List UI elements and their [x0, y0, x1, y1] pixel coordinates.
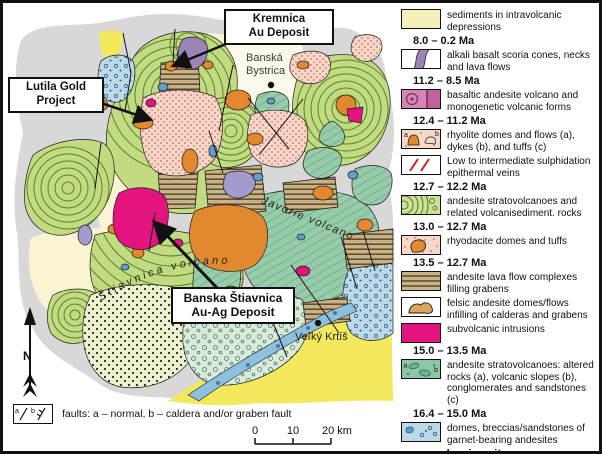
legend-row: alkali basalt scoria cones, necks and la… — [401, 49, 597, 73]
legend-row: basaltic andesite volcano and monogeneti… — [401, 89, 597, 113]
legend-label: andesite stratovolcanoes: altered rocks … — [447, 359, 597, 406]
legend-swatch-rhyolite: a b — [401, 129, 441, 149]
legend-group: 8.0 – 0.2 Ma alkali basalt scoria cones,… — [401, 35, 597, 73]
callout-line: Banska Štiavnica — [177, 291, 289, 305]
legend-age: 11.2 – 8.5 Ma — [413, 75, 597, 87]
svg-text:Veľký Krtíš: Veľký Krtíš — [295, 331, 348, 343]
scale-bar: 0 10 20 km — [252, 425, 352, 444]
legend-label: felsic andesite domes/flows infilling of… — [447, 297, 597, 321]
legend-group: 13.5 – 12.7 Ma andesite lava flow comple… — [401, 257, 597, 295]
svg-text:N: N — [23, 349, 32, 363]
legend-group: Low to intermediate sulphidation epither… — [401, 155, 597, 179]
callout-lutila-gold-project: Lutila Gold Project — [8, 77, 104, 113]
legend-label: sediments in intravolcanic depressions — [447, 9, 597, 33]
legend-age: 8.0 – 0.2 Ma — [413, 35, 597, 47]
svg-text:a: a — [15, 408, 19, 415]
svg-text:a: a — [404, 132, 408, 139]
svg-text:b: b — [31, 408, 35, 415]
legend-swatch-lava-flow-complexes — [401, 271, 441, 291]
legend-label: rhyodacite domes and tuffs — [447, 235, 597, 248]
legend-label: alkali basalt scoria cones, necks and la… — [447, 49, 597, 73]
legend-row: felsic andesite domes/flows infilling of… — [401, 297, 597, 321]
legend-group: 12.7 – 12.2 Ma andesite stratovolcanoes … — [401, 181, 597, 219]
geological-map-figure: Banská Bystrica Veľký Krtíš Štiavnica vo… — [0, 0, 602, 454]
legend-swatch-andesite-strato-young — [401, 195, 441, 215]
legend-label: rhyolite domes and flows (a), dykes (b),… — [447, 129, 597, 153]
legend-label: subvolcanic intrusions — [447, 323, 597, 336]
faults-note-text: faults: a – normal, b – caldera and/or g… — [62, 408, 291, 420]
svg-text:10: 10 — [287, 425, 299, 437]
callout-kremnica-au-deposit: Kremnica Au Deposit — [224, 9, 334, 45]
legend-swatch-basaltic-andesite — [401, 89, 441, 109]
legend-label: Low to intermediate sulphidation epither… — [447, 155, 597, 179]
legend-group: 13.0 – 12.7 Ma rhyodacite domes and tuff… — [401, 221, 597, 255]
callout-line: Lutila Gold — [14, 81, 98, 95]
legend-label: andesite lava flow complexes filling gra… — [447, 271, 597, 295]
legend-group: felsic andesite domes/flows infilling of… — [401, 297, 597, 321]
svg-text:0: 0 — [252, 425, 258, 437]
legend-group: 15.0 – 13.5 Ma a b andesite stratovolcan… — [401, 345, 597, 406]
legend-group: sediments in intravolcanic depressions — [401, 9, 597, 33]
legend-row: a b rhyolite domes and flows (a), dykes … — [401, 129, 597, 153]
legend-label: andesite stratovolcanoes and related vol… — [447, 195, 597, 219]
legend-row: rhyodacite domes and tuffs — [401, 235, 597, 255]
svg-text:20 km: 20 km — [322, 425, 352, 437]
svg-text:b: b — [434, 367, 438, 374]
svg-text:Banská: Banská — [246, 52, 284, 64]
town-marker — [268, 82, 274, 88]
legend-row: subvolcanic intrusions — [401, 323, 597, 343]
legend-swatch-andesite-strato-old: a b — [401, 359, 441, 379]
legend-group: 16.4 – 15.0 Ma domes, breccias/sandstone… — [401, 408, 597, 446]
legend-row: a b andesite stratovolcanoes: altered ro… — [401, 359, 597, 406]
legend-age: 12.7 – 12.2 Ma — [413, 181, 597, 193]
legend-group: pre-volcanic units a b a – Early Miocene… — [401, 448, 597, 451]
callout-banska-stiavnica-deposit: Banska Štiavnica Au-Ag Deposit — [171, 287, 295, 324]
legend-swatch-subvolcanic — [401, 323, 441, 343]
map-canvas: Banská Bystrica Veľký Krtíš Štiavnica vo… — [3, 3, 395, 451]
callout-line: Au-Ag Deposit — [177, 305, 289, 319]
legend-group: 11.2 – 8.5 Ma basaltic andesite volcano … — [401, 75, 597, 113]
legend-swatch-alkali-basalt — [401, 49, 441, 69]
svg-text:Bystrica: Bystrica — [246, 65, 286, 77]
legend-label: domes, breccias/sandstones of garnet-bea… — [447, 422, 597, 446]
legend-swatch-felsic-domes — [401, 297, 441, 317]
legend-row: domes, breccias/sandstones of garnet-bea… — [401, 422, 597, 446]
svg-text:a: a — [404, 363, 408, 370]
legend-panel: sediments in intravolcanic depressions 8… — [395, 3, 599, 451]
legend-age: pre-volcanic units — [413, 448, 597, 451]
legend-age: 15.0 – 13.5 Ma — [413, 345, 597, 357]
svg-text:b: b — [435, 131, 439, 138]
callout-line: Project — [14, 95, 98, 109]
legend-swatch-sediments — [401, 9, 441, 29]
legend-age: 13.5 – 12.7 Ma — [413, 257, 597, 269]
legend-row: andesite stratovolcanoes and related vol… — [401, 195, 597, 219]
legend-age: 13.0 – 12.7 Ma — [413, 221, 597, 233]
legend-age: 12.4 – 11.2 Ma — [413, 115, 597, 127]
callout-line: Au Deposit — [230, 27, 328, 41]
town-marker — [315, 320, 321, 326]
legend-group: subvolcanic intrusions — [401, 323, 597, 343]
faults-legend-row: a b faults: a – normal, b – caldera and/… — [13, 404, 291, 424]
legend-row: sediments in intravolcanic depressions — [401, 9, 597, 33]
legend-swatch-epithermal-veins — [401, 155, 441, 175]
legend-row: andesite lava flow complexes filling gra… — [401, 271, 597, 295]
legend-swatch-garnet-andesites — [401, 422, 441, 442]
legend-swatch-rhyodacite — [401, 235, 441, 255]
legend-age: 16.4 – 15.0 Ma — [413, 408, 597, 420]
legend-row: Low to intermediate sulphidation epither… — [401, 155, 597, 179]
legend-group: 12.4 – 11.2 Ma a b rhyolite domes and fl… — [401, 115, 597, 153]
callout-line: Kremnica — [230, 13, 328, 27]
legend-label: basaltic andesite volcano and monogeneti… — [447, 89, 597, 113]
faults-swatch-icon: a b — [13, 404, 53, 424]
